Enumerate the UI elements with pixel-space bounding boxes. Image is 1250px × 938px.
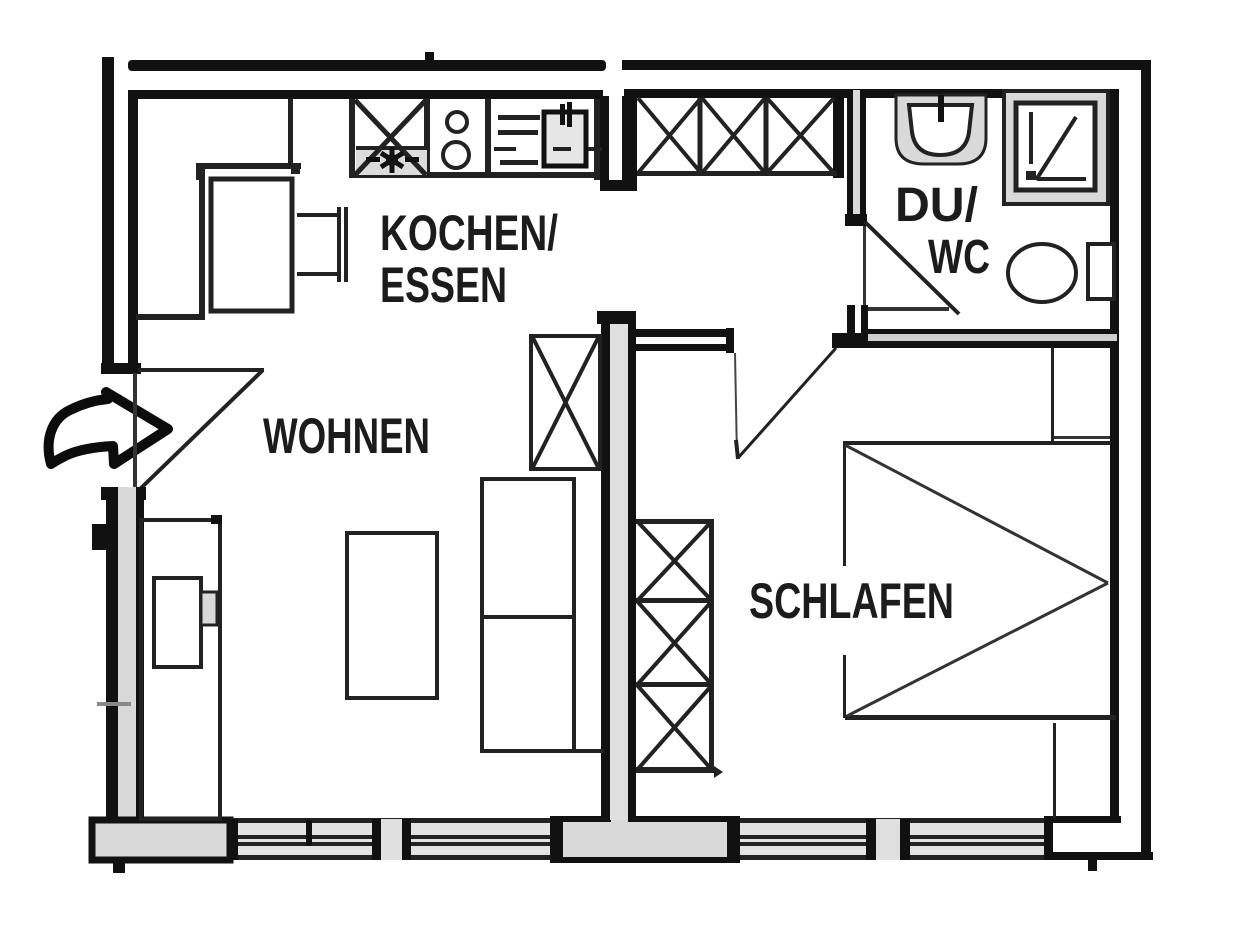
- svg-text:KOCHEN/: KOCHEN/: [380, 205, 558, 261]
- svg-text:ESSEN: ESSEN: [380, 257, 507, 313]
- svg-text:DU/: DU/: [895, 179, 978, 232]
- svg-text:WOHNEN: WOHNEN: [263, 408, 430, 464]
- svg-text:WC: WC: [928, 231, 990, 284]
- svg-text:SCHLAFEN: SCHLAFEN: [749, 573, 954, 629]
